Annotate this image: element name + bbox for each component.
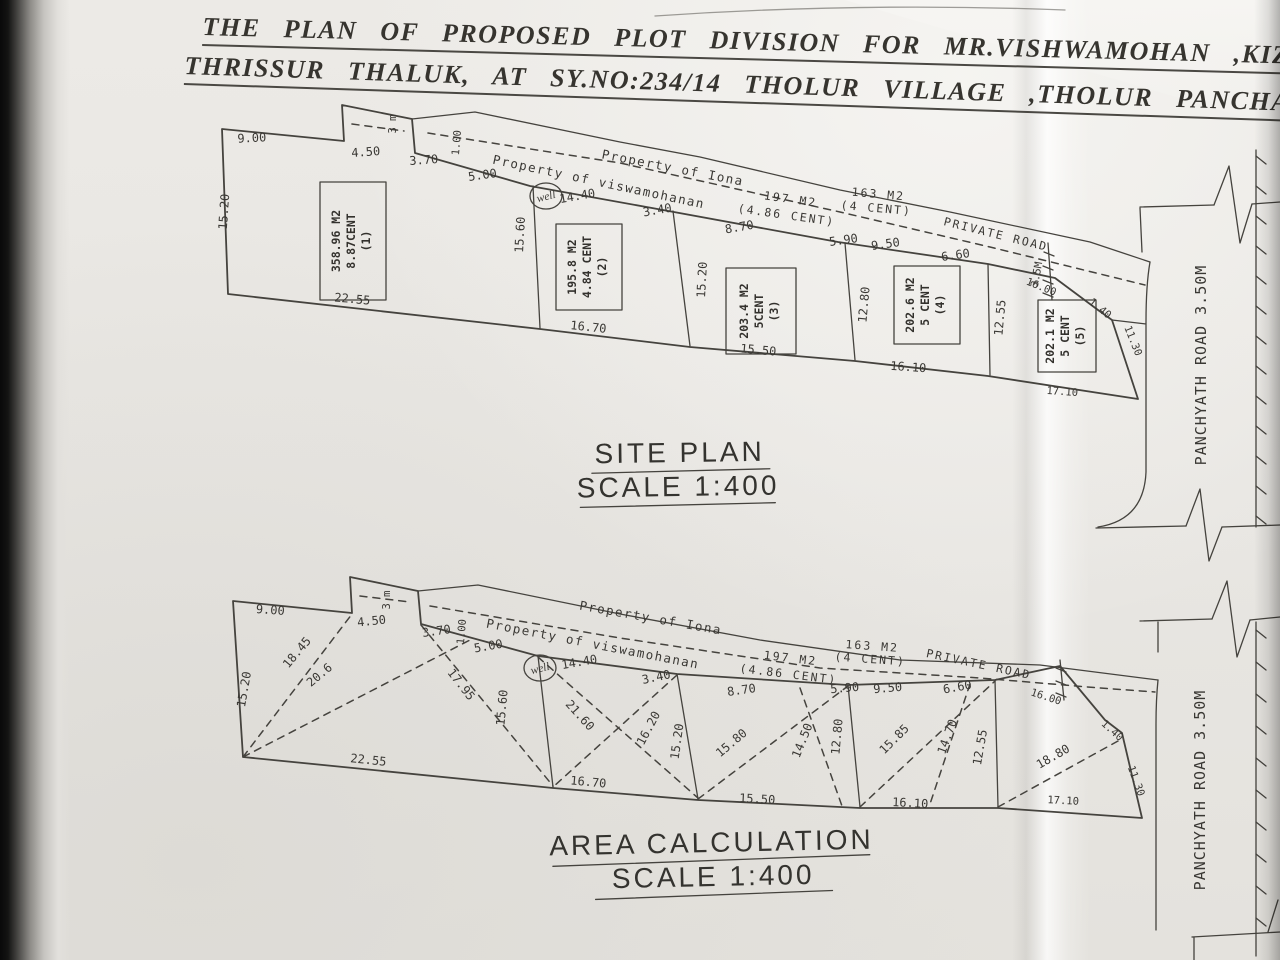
- site-dim-top2: 4.50: [351, 144, 381, 160]
- plot-4-area: 202.6 M2: [903, 277, 917, 332]
- area-diag-1470: 14.70: [934, 717, 960, 756]
- site-well-label: well: [535, 189, 557, 205]
- area-dim-top1: 9.00: [255, 602, 285, 618]
- site-plan-drawing: 358.96 M2 8.87CENT (1) 195.8 M2 4.84 CEN…: [216, 105, 1280, 561]
- site-road-bottom-line: [1096, 525, 1280, 528]
- plot-5-label: 202.1 M2 5 CENT (5): [1038, 300, 1096, 372]
- site-plan-heading-block: SITE PLAN SCALE 1:400: [576, 436, 780, 508]
- site-road-break-top: [1214, 166, 1252, 243]
- plot-2-label: 195.8 M2 4.84 CENT (2): [556, 224, 622, 310]
- site-road-left-edge: [1098, 208, 1150, 527]
- site-dim-top5: 14.40: [558, 186, 596, 206]
- plot-5-cent: 5 CENT: [1058, 315, 1072, 357]
- area-calculation-drawing: well Property of Iona Property of viswam…: [233, 577, 1280, 960]
- page-edge-line: [655, 7, 1065, 16]
- site-dim-top7: 8.70: [724, 218, 755, 237]
- scanned-site-plan-document: THE PLAN OF PROPOSED PLOT DIVISION FOR M…: [0, 0, 1280, 960]
- area-diag-1580: 15.80: [713, 726, 750, 760]
- plot-1-cent: 8.87CENT: [344, 213, 358, 268]
- site-plan-heading: SITE PLAN: [594, 436, 765, 469]
- area-diag-1585: 15.85: [876, 721, 911, 756]
- area-diag-1795: 17.95: [445, 666, 478, 703]
- site-dim-bot4: 16.10: [890, 359, 927, 375]
- plot-2-number: (2): [595, 257, 609, 278]
- area-calc-heading-block: AREA CALCULATION SCALE 1:400: [549, 824, 875, 901]
- area-road-left-edge: [1156, 622, 1158, 930]
- area-dim-bot4: 16.10: [892, 795, 929, 811]
- plot-1-area: 358.96 M2: [329, 210, 343, 272]
- site-dim-bot3: 15.50: [740, 341, 777, 358]
- plot-1-number: (1): [359, 231, 373, 252]
- area-dim-140: 1.40: [1099, 718, 1126, 744]
- site-dim-top3: 3.70: [409, 152, 439, 168]
- area-dim-bot3: 15.50: [739, 791, 776, 807]
- site-dim-div4: 12.55: [991, 299, 1008, 336]
- site-panchyath-road-label: PANCHYATH ROAD 3.50M: [1192, 265, 1210, 466]
- site-dim-top6: 3.40: [642, 201, 673, 220]
- area-lane-width-label: 3 m: [381, 591, 393, 610]
- area-dim-top2: 4.50: [356, 613, 386, 630]
- plan-linework: 358.96 M2 8.87CENT (1) 195.8 M2 4.84 CEN…: [0, 0, 1280, 960]
- site-dim-div3: 12.80: [855, 286, 872, 323]
- site-plan-scale: SCALE 1:400: [577, 470, 780, 504]
- area-dim-div1: 15.60: [493, 689, 510, 726]
- site-dim-bot5: 17.10: [1046, 385, 1078, 399]
- site-lane-width-label: 3 m: [387, 115, 399, 134]
- site-road-break-bottom: [1186, 489, 1222, 561]
- area-dim-bot2: 16.70: [570, 773, 607, 790]
- area-road-break-top: [1212, 581, 1250, 657]
- plot-3-label: 203.4 M2 5CENT (3): [726, 268, 796, 354]
- area-dim-top3: 3.70: [421, 622, 452, 640]
- site-dim-top8: 5.90: [828, 231, 859, 249]
- area-well-label: well: [529, 661, 551, 677]
- site-dim-bot1: 22.55: [334, 290, 371, 307]
- area-plot-dividers: [538, 656, 998, 807]
- area-dim-right: 11.30: [1125, 764, 1147, 798]
- plot-3-area: 203.4 M2: [737, 283, 751, 338]
- area-dim-top10: 6.60: [942, 678, 973, 697]
- plot-3-cent: 5CENT: [752, 294, 766, 329]
- area-dim-top9: 9.50: [873, 680, 903, 696]
- area-diag-1845: 18.45: [280, 634, 314, 671]
- area-dim-bot1: 22.55: [350, 751, 387, 769]
- plot-2-cent: 4.84 CENT: [580, 236, 594, 298]
- area-dim-div2: 15.20: [668, 723, 687, 761]
- area-dim-top5: 14.40: [560, 652, 598, 672]
- area-dim-16: 16.00: [1029, 687, 1063, 708]
- area-lane-length-label: 1.00: [455, 619, 469, 645]
- area-diag-1620: 16.20: [634, 709, 663, 747]
- area-property-iona-label: Property of Iona: [578, 598, 723, 638]
- site-dim-right: 11.30: [1121, 324, 1144, 358]
- plot-5-area: 202.1 M2: [1043, 308, 1057, 363]
- area-dim-div4: 12.55: [970, 728, 990, 766]
- area-panchyath-road-label: PANCHYATH ROAD 3.50M: [1191, 690, 1209, 891]
- plot-5-number: (5): [1073, 326, 1087, 347]
- site-dim-div1: 15.60: [512, 216, 528, 253]
- area-dim-div3: 12.80: [828, 718, 845, 755]
- plot-4-cent: 5 CENT: [918, 284, 932, 326]
- area-dim-top8: 5.90: [830, 680, 860, 696]
- site-well: well: [530, 183, 562, 209]
- plot-3-number: (3): [767, 301, 781, 322]
- area-dim-bot5: 17.10: [1047, 794, 1079, 808]
- area-diag-1880: 18.80: [1034, 741, 1072, 771]
- area-diag-2160: 21.60: [563, 697, 598, 733]
- site-dim-div2: 15.20: [694, 261, 710, 298]
- area-boundary: [233, 577, 1142, 818]
- plot-2-area: 195.8 M2: [565, 239, 579, 294]
- plot-4-label: 202.6 M2 5 CENT (4): [894, 266, 960, 344]
- area-diagonals: [243, 614, 1118, 807]
- area-calc-scale: SCALE 1:400: [612, 859, 815, 894]
- area-private-road-label: PRIVATE ROAD: [925, 646, 1033, 682]
- plot-1-label: 358.96 M2 8.87CENT (1): [320, 182, 386, 300]
- site-dim-top1: 9.00: [237, 130, 267, 145]
- plot-4-number: (4): [933, 295, 947, 316]
- site-lane-length-label: 1.00: [450, 130, 464, 156]
- site-dim-top4: 5.00: [467, 166, 498, 184]
- area-dim-top7: 8.70: [726, 681, 757, 699]
- scan-right-shadow: [1254, 0, 1280, 960]
- area-diag-206: 20.6: [304, 660, 335, 689]
- site-dim-left: 15.20: [216, 193, 232, 230]
